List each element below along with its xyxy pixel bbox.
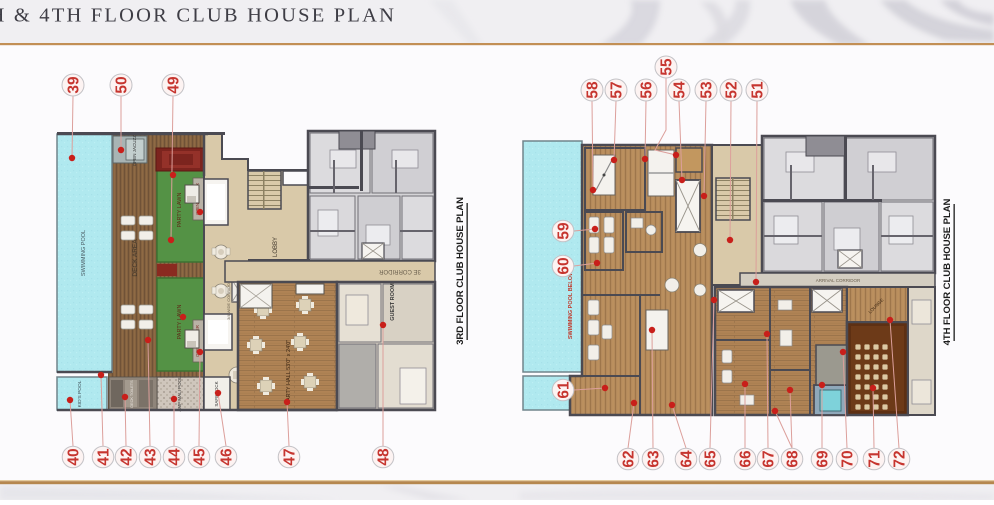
- svg-text:71: 71: [867, 450, 884, 468]
- svg-text:55: 55: [659, 58, 676, 76]
- svg-text:48: 48: [376, 448, 393, 466]
- svg-text:69: 69: [815, 450, 832, 468]
- svg-text:41: 41: [96, 448, 113, 466]
- svg-text:46: 46: [219, 448, 236, 466]
- svg-text:3/4 WIDE CORRIDOR: 3/4 WIDE CORRIDOR: [226, 280, 231, 320]
- svg-text:H & 4TH FLOOR CLUB HOUSE PLAN: H & 4TH FLOOR CLUB HOUSE PLAN: [0, 5, 396, 27]
- svg-text:49: 49: [166, 76, 183, 94]
- svg-text:62: 62: [621, 450, 638, 467]
- svg-text:63: 63: [646, 450, 663, 468]
- svg-text:ARRIVAL CORRIDOR: ARRIVAL CORRIDOR: [816, 278, 861, 283]
- svg-text:LOBBY: LOBBY: [273, 237, 279, 257]
- svg-text:40: 40: [66, 448, 83, 465]
- svg-text:53: 53: [699, 81, 716, 99]
- svg-text:PARTY HALL 53'0" x 24'0": PARTY HALL 53'0" x 24'0": [286, 340, 292, 405]
- svg-text:64: 64: [679, 450, 696, 468]
- svg-text:66: 66: [738, 450, 755, 468]
- svg-text:AMP MALI POOL: AMP MALI POOL: [177, 376, 182, 412]
- svg-text:50: 50: [114, 76, 131, 93]
- svg-text:56: 56: [639, 81, 656, 99]
- svg-text:SWIMMING POOL BELOW: SWIMMING POOL BELOW: [568, 270, 574, 339]
- svg-text:42: 42: [119, 448, 136, 465]
- svg-text:51: 51: [750, 81, 767, 99]
- svg-text:PARTY LAWN: PARTY LAWN: [177, 305, 183, 340]
- svg-text:70: 70: [840, 450, 857, 467]
- svg-text:54: 54: [672, 81, 689, 99]
- svg-text:58: 58: [585, 81, 602, 99]
- svg-text:44: 44: [167, 448, 184, 466]
- svg-text:60: 60: [556, 257, 573, 274]
- svg-text:DECK AREA: DECK AREA: [132, 239, 139, 277]
- svg-text:4TH FLOOR CLUB HOUSE PLAN: 4TH FLOOR CLUB HOUSE PLAN: [942, 198, 953, 345]
- svg-text:45: 45: [192, 448, 209, 466]
- svg-text:72: 72: [892, 450, 909, 467]
- svg-text:3E CORRIDOR: 3E CORRIDOR: [378, 268, 420, 274]
- svg-text:GUEST ROOM: GUEST ROOM: [390, 283, 396, 321]
- svg-text:DECK TOILETS: DECK TOILETS: [130, 380, 134, 408]
- svg-text:57: 57: [609, 81, 626, 98]
- svg-text:3RD FLOOR CLUB HOUSE PLAN: 3RD FLOOR CLUB HOUSE PLAN: [455, 197, 466, 345]
- svg-text:67: 67: [761, 450, 778, 467]
- svg-text:59: 59: [556, 222, 573, 240]
- svg-text:SWIMMING POOL: SWIMMING POOL: [81, 230, 87, 276]
- svg-text:65: 65: [703, 450, 720, 468]
- svg-text:39: 39: [66, 76, 83, 94]
- svg-text:52: 52: [724, 81, 741, 98]
- svg-text:OPEN JACUZZI: OPEN JACUZZI: [132, 134, 137, 167]
- svg-text:43: 43: [143, 448, 160, 466]
- svg-text:PARTY LAWN: PARTY LAWN: [177, 193, 183, 228]
- svg-text:KID'S POOL: KID'S POOL: [77, 380, 83, 407]
- svg-text:61: 61: [556, 381, 573, 399]
- svg-text:47: 47: [282, 448, 299, 465]
- svg-text:68: 68: [785, 450, 802, 468]
